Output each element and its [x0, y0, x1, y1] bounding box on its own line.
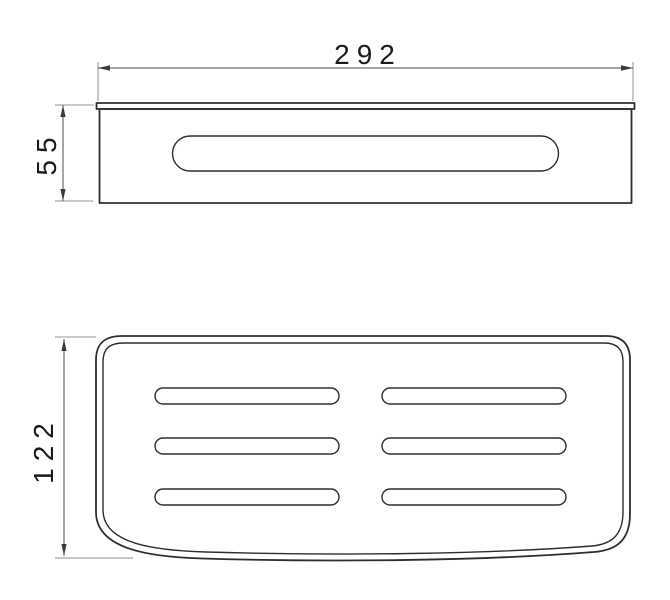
front-view-handle-slot: [173, 136, 559, 171]
drain-slot-row1-right: [382, 388, 566, 404]
height-dimension: 55: [31, 105, 94, 201]
drain-slot-row3-right: [382, 489, 566, 505]
drain-slot-row3-left: [155, 489, 339, 505]
width-arrowhead-left-icon: [98, 65, 110, 70]
drain-slot-row2-left: [155, 438, 339, 454]
width-dimension: 292: [98, 39, 633, 101]
drawing-page: 292 55: [0, 0, 670, 600]
plan-view-outer-outline: [96, 336, 630, 560]
plan-view-drain-slots: [155, 388, 566, 505]
technical-drawing-canvas: 292 55: [0, 0, 670, 600]
depth-dimension: 122: [28, 337, 133, 558]
height-arrowhead-top-icon: [60, 105, 65, 117]
front-view-body-outline: [100, 109, 632, 203]
front-view: [97, 103, 635, 203]
width-dimension-label: 292: [334, 39, 402, 70]
drain-slot-row2-right: [382, 438, 566, 454]
depth-arrowhead-bottom-icon: [61, 544, 66, 556]
width-arrowhead-right-icon: [621, 65, 633, 70]
depth-dimension-label: 122: [28, 416, 59, 484]
plan-view: [96, 336, 630, 560]
drain-slot-row1-left: [155, 388, 339, 404]
plan-view-inner-outline: [103, 343, 623, 554]
depth-arrowhead-top-icon: [61, 339, 66, 351]
height-arrowhead-bottom-icon: [60, 189, 65, 201]
height-dimension-label: 55: [31, 130, 62, 175]
